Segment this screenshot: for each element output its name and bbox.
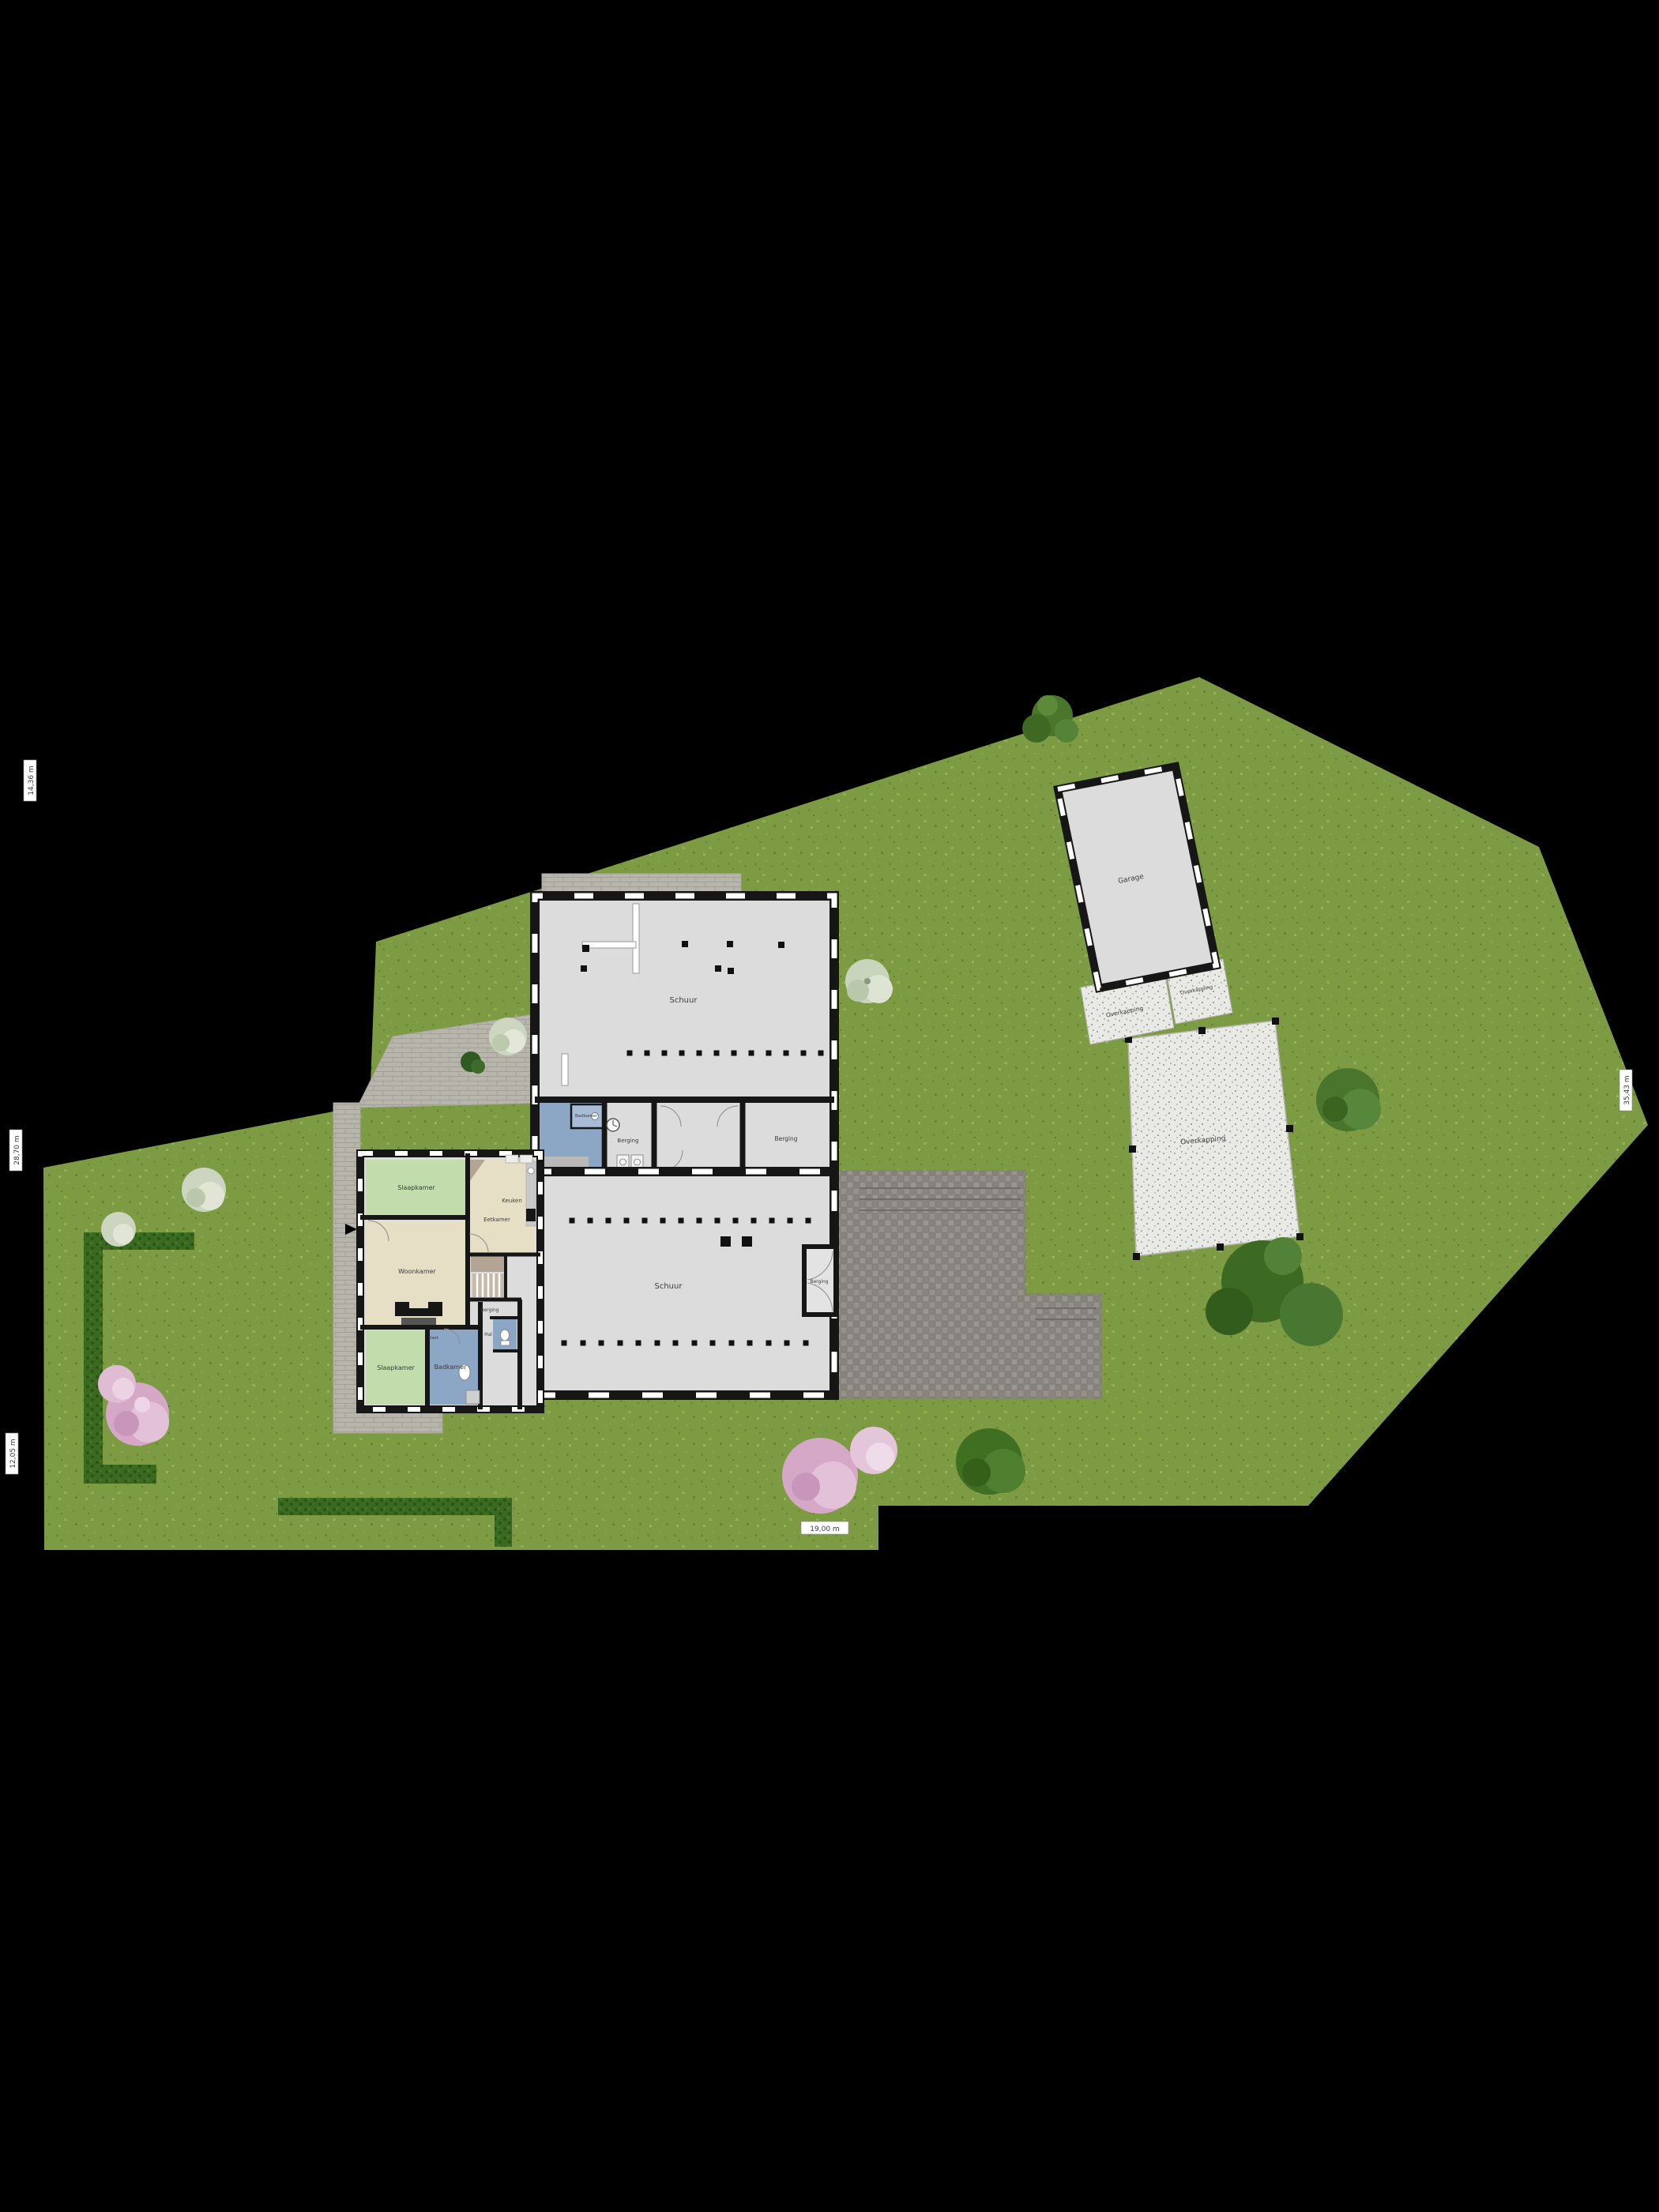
site-plan-page: Overkapping Garage Overkapping Overkappi… [0, 0, 1659, 2212]
tree-white-left [182, 1168, 226, 1212]
blossom-tree-bottom-small [850, 1427, 897, 1474]
barn-storage-right-label: Berging [774, 1135, 797, 1142]
fireplace [395, 1302, 442, 1325]
stairs [472, 1273, 504, 1297]
barn-bathroom-label: Badkamer [575, 1114, 598, 1119]
house: Slaapkamer Keuken Eetkamer Woonkamer Sla… [345, 1153, 540, 1409]
svg-text:28,70 m: 28,70 m [13, 1135, 21, 1164]
top-barn-label: Schuur [670, 996, 698, 1005]
svg-text:19,00 m: 19,00 m [810, 1525, 839, 1533]
dimension-label-right: 35,43 m [1619, 1070, 1632, 1111]
appliance-icon [520, 1155, 532, 1163]
toilet-icon [501, 1330, 510, 1345]
dimension-label-left-bottom: 12,05 m [6, 1433, 18, 1474]
lower-barn-label: Schuur [655, 1282, 683, 1291]
svg-text:14,36 m: 14,36 m [28, 766, 36, 795]
dimension-label-left-top: 14,36 m [24, 760, 36, 801]
bathroom-label: Badkamer [434, 1364, 468, 1371]
lower-barn: Berging Schuur [531, 1172, 836, 1395]
vestibule-label: Berging [810, 1279, 828, 1285]
tree-white-left-small [101, 1212, 136, 1247]
dimension-label-left-middle: 28,70 m [9, 1130, 22, 1171]
blossom-tree-left-small [98, 1365, 136, 1403]
bedroom-bottom-label: Slaapkamer [377, 1364, 415, 1371]
vestibule: Berging [804, 1247, 836, 1315]
bedroom-top-label: Slaapkamer [397, 1184, 435, 1191]
scale-label: 19,00 m [801, 1522, 848, 1534]
site-plan: Overkapping Garage Overkapping Overkappi… [0, 0, 1659, 2212]
stair-landing [471, 1255, 506, 1272]
clock-icon [607, 1119, 619, 1131]
closet-label: Kast [429, 1336, 439, 1341]
shower-icon [466, 1390, 480, 1404]
hall-label: Hal [484, 1332, 492, 1337]
appliance-icon [506, 1155, 518, 1163]
barn-counter [543, 1157, 589, 1168]
canopy-gravel-pad: Overkapping [1125, 1018, 1303, 1260]
storage-label: Berging [480, 1307, 498, 1313]
post-large [742, 1236, 752, 1247]
dining-label: Eetkamer [483, 1217, 510, 1223]
blossom-tree-bottom [782, 1438, 858, 1514]
living-label: Woonkamer [398, 1268, 436, 1275]
svg-text:12,05 m: 12,05 m [9, 1439, 17, 1468]
sink-icon [528, 1168, 534, 1174]
room-kitchen [469, 1160, 536, 1255]
kitchen-label: Keuken [502, 1198, 522, 1204]
post-large [720, 1236, 731, 1247]
top-barn: Schuur Badkamer Berging Berging [535, 896, 834, 1176]
stove-icon [526, 1209, 536, 1221]
barn-storage-left-label: Berging [617, 1138, 638, 1144]
tree-white-barn [489, 1018, 527, 1055]
svg-text:35,43 m: 35,43 m [1623, 1075, 1631, 1104]
